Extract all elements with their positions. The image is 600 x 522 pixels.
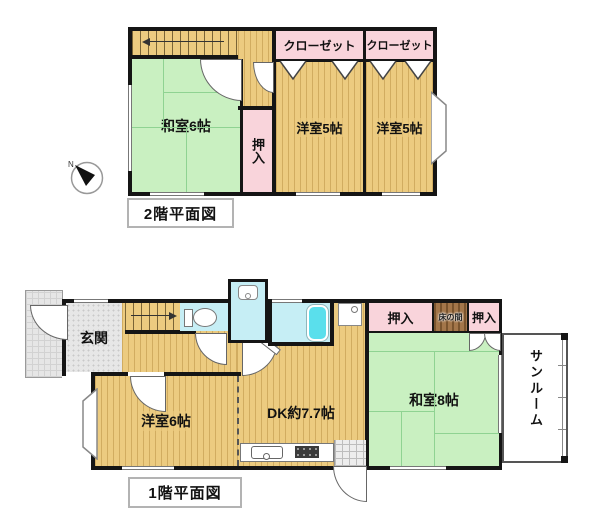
room-bath bbox=[268, 299, 334, 346]
window bbox=[498, 355, 502, 433]
wall bbox=[164, 372, 241, 376]
room-sunroom: サンルーム bbox=[502, 333, 568, 463]
sink-drain-icon bbox=[245, 293, 251, 299]
closet-door-icon bbox=[404, 61, 432, 81]
back-entry-tile bbox=[334, 440, 366, 466]
window bbox=[390, 466, 446, 470]
stairs-1f bbox=[125, 303, 182, 330]
window-tick bbox=[558, 429, 566, 430]
stove-icon bbox=[295, 446, 319, 458]
room-tokonoma: 床の間 bbox=[434, 303, 467, 331]
window bbox=[122, 466, 174, 470]
door-arc-back-entrance bbox=[333, 466, 367, 502]
room-label-yoshitsu5-right: 洋室5帖 bbox=[376, 118, 422, 137]
room-genkan: 玄関 bbox=[66, 303, 122, 372]
window bbox=[74, 299, 108, 303]
room-yoshitsu5-left-2f: 洋室5帖 bbox=[276, 62, 363, 192]
room-label-closet-left: クローゼット bbox=[283, 37, 355, 54]
window bbox=[382, 192, 420, 196]
closet-door-icon bbox=[279, 61, 307, 81]
floorplan-canvas: 和室6帖 押入 クローゼット クローゼット 洋室5帖 洋室5帖 bbox=[0, 0, 600, 522]
bay-window-2f bbox=[431, 91, 450, 165]
tatami-line bbox=[186, 127, 187, 192]
stairs-arrow-left-icon bbox=[138, 38, 150, 46]
floor1-title-text: 1階平面図 bbox=[148, 482, 221, 503]
room-yoshitsu5-right-2f: 洋室5帖 bbox=[366, 62, 433, 192]
wall bbox=[91, 372, 128, 376]
floor1-title: 1階平面図 bbox=[128, 477, 242, 508]
window bbox=[128, 85, 132, 171]
window-tick bbox=[558, 365, 566, 366]
floor2-plan: 和室6帖 押入 クローゼット クローゼット 洋室5帖 洋室5帖 bbox=[128, 27, 437, 196]
water-heater bbox=[338, 303, 362, 326]
room-yoshitsu6: 洋室6帖 bbox=[95, 376, 237, 466]
bathtub-icon bbox=[307, 305, 328, 341]
tatami-line bbox=[401, 411, 402, 466]
room-label-tokonoma: 床の間 bbox=[439, 312, 463, 323]
room-label-yoshitsu6: 洋室6帖 bbox=[141, 411, 191, 431]
floor1-plan: 玄関 DK約7.7帖 bbox=[62, 299, 502, 470]
window bbox=[272, 299, 302, 303]
window bbox=[296, 192, 340, 196]
closet-door-icon bbox=[369, 61, 397, 81]
room-label-oshiire-right: 押入 bbox=[472, 309, 496, 326]
toilet-tank-icon bbox=[184, 309, 193, 327]
corner-post bbox=[561, 456, 568, 463]
room-closet-right-2f: クローゼット bbox=[366, 31, 433, 59]
room-label-oshiire-left: 押入 bbox=[387, 308, 413, 327]
kitchen-counter bbox=[240, 443, 334, 462]
stairs-arrow-line bbox=[131, 315, 171, 316]
toilet-icon bbox=[193, 308, 217, 327]
closet-door-icon bbox=[331, 61, 359, 81]
dashed-partition bbox=[237, 376, 239, 466]
compass-icon: N bbox=[66, 157, 106, 197]
room-label-sunroom: サンルーム bbox=[526, 349, 545, 429]
floor2-title: 2階平面図 bbox=[127, 198, 234, 228]
heater-knob-icon bbox=[351, 306, 358, 313]
tatami-line bbox=[434, 351, 435, 466]
stairs-arrow-line bbox=[146, 41, 224, 42]
bay-window-1f bbox=[79, 388, 98, 460]
room-label-closet-right: クローゼット bbox=[367, 37, 433, 53]
room-washbasin bbox=[228, 279, 268, 343]
stairs-2f bbox=[132, 31, 238, 55]
sunroom-window-line bbox=[562, 335, 563, 461]
tatami-line bbox=[163, 59, 164, 128]
floor2-title-text: 2階平面図 bbox=[144, 203, 217, 224]
room-oshiire-right-1f: 押入 bbox=[469, 303, 499, 331]
room-label-yoshitsu5-left: 洋室5帖 bbox=[296, 118, 342, 137]
room-label-oshiire-2f: 押入 bbox=[248, 138, 267, 164]
compass-direction: N bbox=[68, 160, 74, 169]
faucet-icon bbox=[263, 453, 270, 460]
room-oshiire-2f: 押入 bbox=[243, 110, 272, 192]
room-closet-left-2f: クローゼット bbox=[276, 31, 363, 59]
room-oshiire-left-1f: 押入 bbox=[369, 303, 432, 331]
corner-post bbox=[561, 333, 568, 340]
room-label-genkan: 玄関 bbox=[80, 328, 108, 348]
room-label-dk: DK約7.7帖 bbox=[237, 403, 365, 423]
tatami-line bbox=[434, 433, 499, 434]
window-tick bbox=[558, 397, 566, 398]
window bbox=[150, 192, 204, 196]
room-toilet bbox=[180, 303, 228, 331]
